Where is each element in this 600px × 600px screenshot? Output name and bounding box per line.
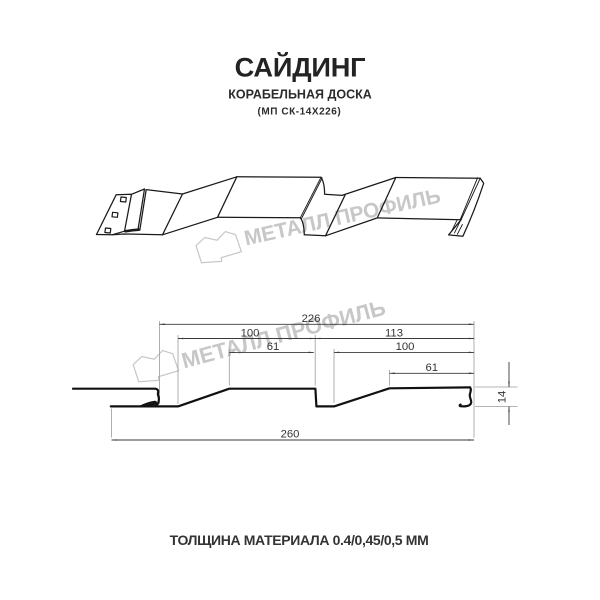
- svg-text:61: 61: [426, 362, 439, 374]
- svg-text:14: 14: [497, 391, 509, 404]
- svg-text:260: 260: [281, 428, 300, 440]
- svg-text:САЙДИНГ: САЙДИНГ: [235, 51, 366, 83]
- svg-text:113: 113: [385, 327, 403, 339]
- svg-text:МЕТАЛЛ ПРОФИЛЬ: МЕТАЛЛ ПРОФИЛЬ: [179, 295, 389, 374]
- svg-text:(МП СК-14Х226): (МП СК-14Х226): [258, 106, 342, 117]
- svg-text:226: 226: [302, 313, 321, 325]
- svg-text:КОРАБЕЛЬНАЯ ДОСКА: КОРАБЕЛЬНАЯ ДОСКА: [228, 88, 372, 102]
- svg-text:100: 100: [241, 327, 260, 339]
- svg-text:ТОЛЩИНА МАТЕРИАЛА 0.4/0,45/0,5: ТОЛЩИНА МАТЕРИАЛА 0.4/0,45/0,5 ММ: [170, 532, 429, 548]
- svg-text:100: 100: [396, 341, 415, 353]
- svg-text:61: 61: [267, 341, 280, 353]
